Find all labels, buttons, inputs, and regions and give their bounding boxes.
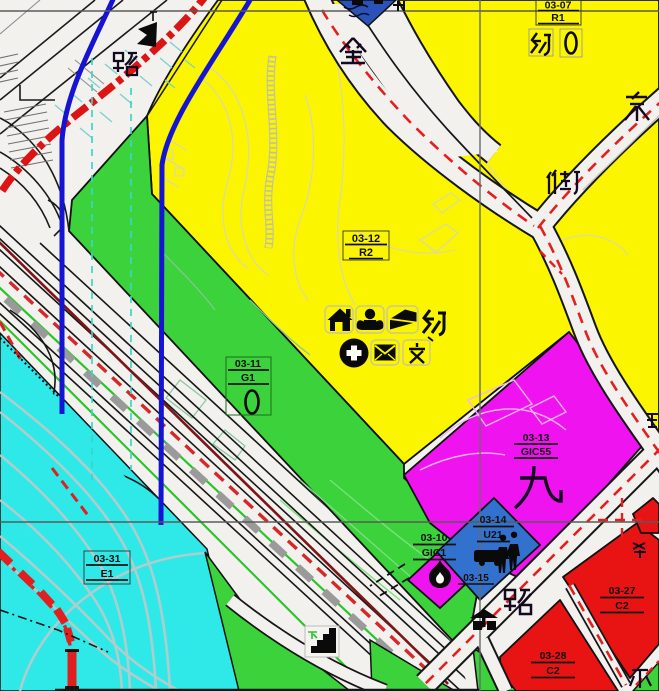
- svg-text:03-12: 03-12: [352, 233, 380, 245]
- svg-text:G1: G1: [241, 372, 255, 384]
- svg-text:03-31: 03-31: [94, 553, 121, 565]
- svg-text:03-14: 03-14: [480, 514, 507, 526]
- svg-text:GIC55: GIC55: [521, 446, 552, 458]
- svg-text:E1: E1: [101, 568, 114, 580]
- svg-text:R2: R2: [359, 247, 373, 259]
- svg-text:C2: C2: [546, 665, 560, 677]
- svg-text:03-15: 03-15: [463, 573, 489, 584]
- svg-text:03-10: 03-10: [421, 532, 448, 544]
- svg-text:03-27: 03-27: [609, 585, 636, 597]
- svg-text:U21: U21: [483, 529, 502, 541]
- svg-text:03-11: 03-11: [235, 358, 261, 370]
- svg-text:C2: C2: [615, 600, 629, 612]
- svg-text:R1: R1: [551, 12, 565, 24]
- svg-text:03-28: 03-28: [540, 650, 567, 662]
- svg-text:03-13: 03-13: [523, 432, 550, 444]
- svg-text:GIC1: GIC1: [422, 547, 447, 559]
